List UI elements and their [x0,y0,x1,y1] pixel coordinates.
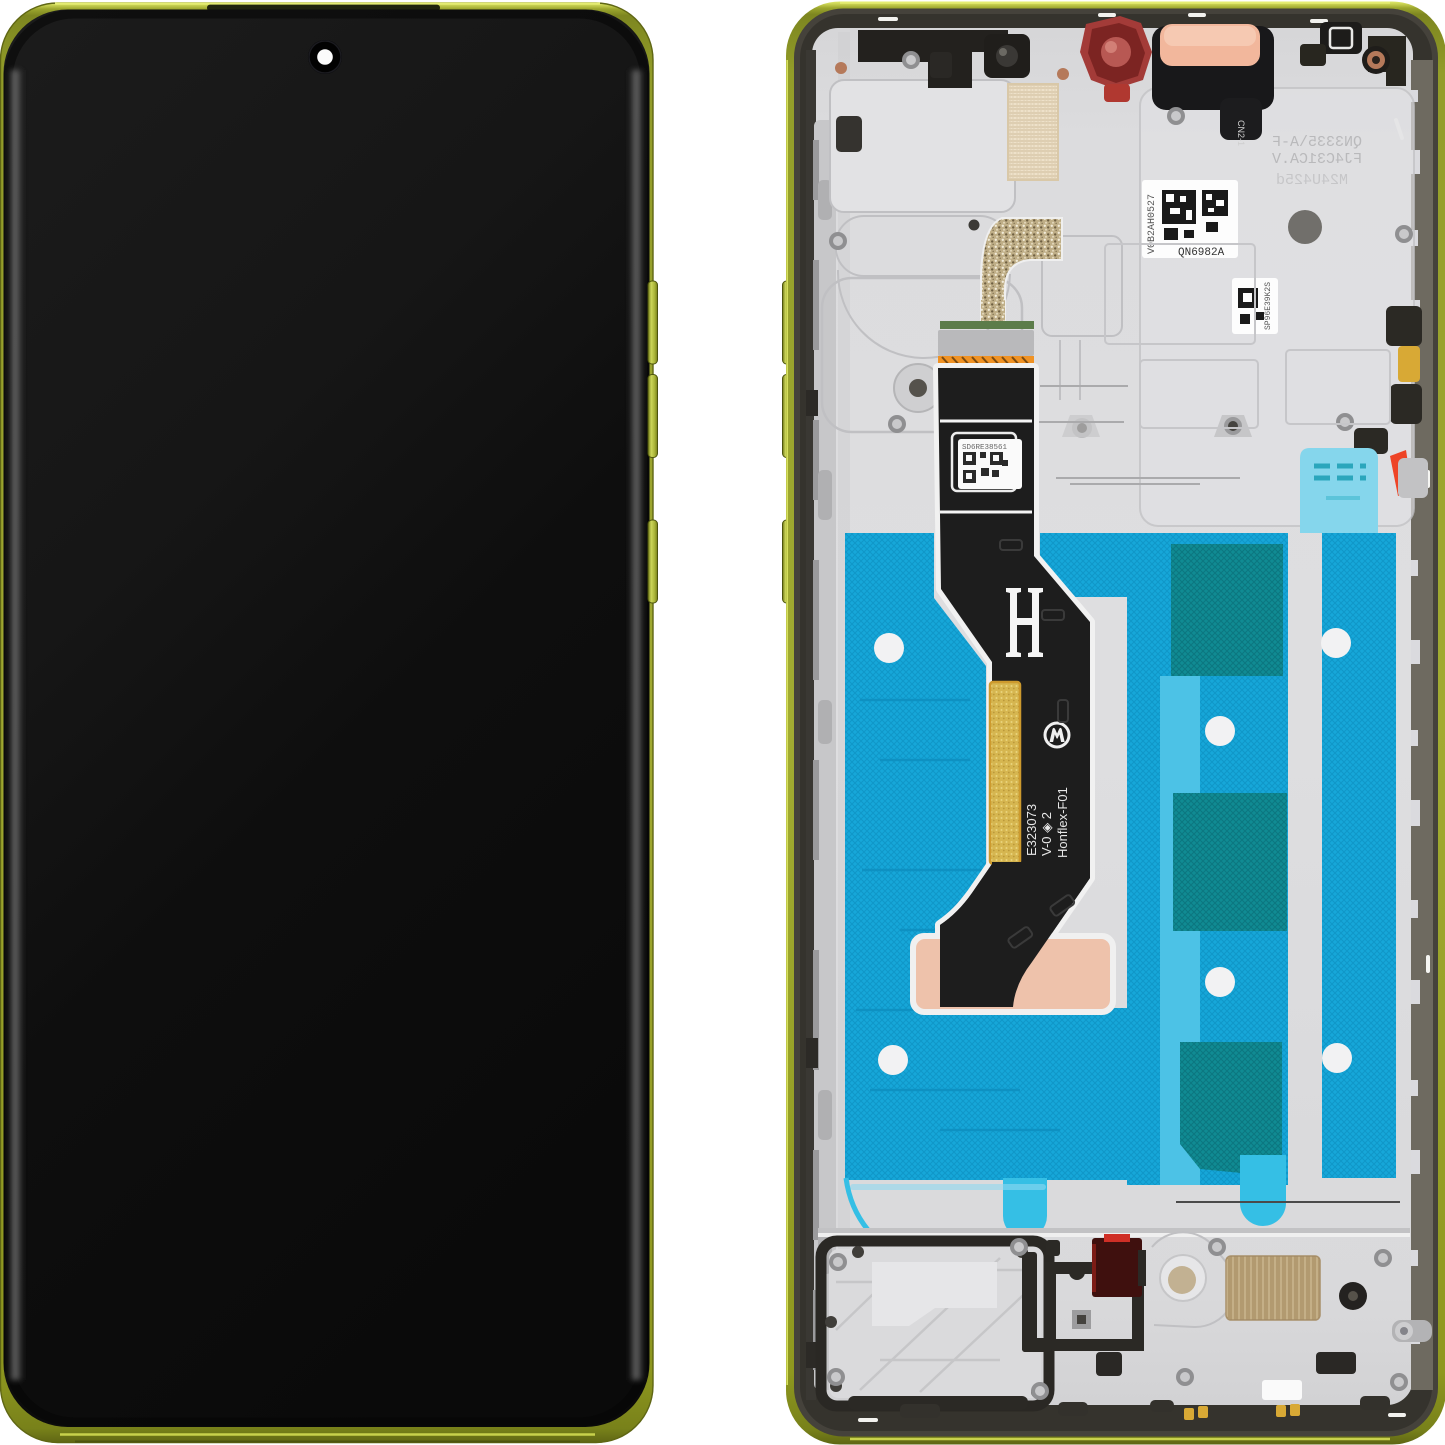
svg-text:V-0 ◈ 2: V-0 ◈ 2 [1039,812,1054,856]
svg-text:FJ4C31CA.V: FJ4C31CA.V [1272,151,1362,168]
svg-text:QN3335\A-F: QN3335\A-F [1272,134,1362,151]
svg-text:M24U425d: M24U425d [1276,172,1348,189]
svg-text:SP96E39K2S: SP96E39K2S [1264,282,1273,330]
svg-text:QN6982A: QN6982A [1178,247,1225,259]
svg-text:E323073: E323073 [1024,804,1039,856]
svg-text:CN2-1: CN2-1 [1236,120,1246,146]
svg-text:Honflex-F01: Honflex-F01 [1055,787,1070,858]
svg-text:SD6RE38561: SD6RE38561 [962,444,1008,452]
